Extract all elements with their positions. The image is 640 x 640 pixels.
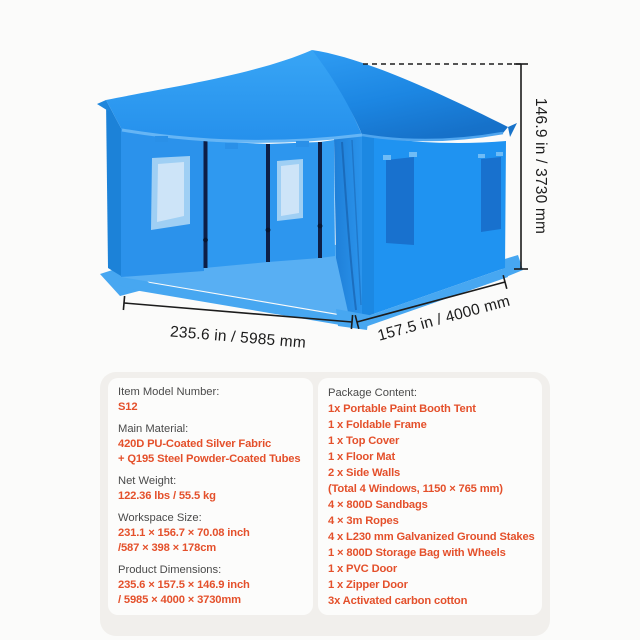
eave-strap-2 bbox=[225, 143, 238, 149]
spec-value: /587 × 398 × 178cm bbox=[118, 541, 313, 556]
spec-group-workspace: Workspace Size: 231.1 × 156.7 × 70.08 in… bbox=[118, 511, 313, 556]
side-window-back bbox=[481, 157, 501, 232]
spec-value: 420D PU-Coated Silver Fabric bbox=[118, 437, 313, 452]
spec-value: 235.6 × 157.5 × 146.9 inch bbox=[118, 578, 313, 593]
side-window-front-tab-left bbox=[383, 155, 391, 160]
spec-group-dimensions: Product Dimensions: 235.6 × 157.5 × 146.… bbox=[118, 563, 313, 608]
side-window-back-tab-left bbox=[478, 154, 485, 158]
zipper-middle bbox=[266, 144, 270, 262]
height-dimension-label: 146.9 in / 3730 mm bbox=[532, 98, 549, 234]
product-spec-image: 146.9 in / 3730 mm 235.6 in / 5985 mm 15… bbox=[0, 0, 640, 640]
front-panel-right-strip bbox=[320, 140, 335, 258]
package-item: 3x Activated carbon cotton bbox=[328, 593, 542, 609]
front-window-left-pane bbox=[157, 162, 184, 222]
zipper-right bbox=[318, 142, 322, 258]
package-item: 4 x L230 mm Galvanized Ground Stakes bbox=[328, 529, 542, 545]
spec-panel: Item Model Number: S12 Main Material: 42… bbox=[100, 372, 550, 636]
package-item: 2 x Side Walls bbox=[328, 465, 542, 481]
zipper-pull-right bbox=[318, 224, 323, 229]
tent-dimension-diagram: 146.9 in / 3730 mm 235.6 in / 5985 mm 15… bbox=[0, 0, 640, 372]
package-content-label: Package Content: bbox=[328, 385, 542, 401]
spec-value: / 5985 × 4000 × 3730mm bbox=[118, 593, 313, 608]
eave-strap-1 bbox=[155, 136, 168, 142]
spec-group-material: Main Material: 420D PU-Coated Silver Fab… bbox=[118, 422, 313, 467]
tent-left-wall-edge bbox=[106, 100, 122, 276]
front-window-right-pane bbox=[281, 164, 299, 216]
package-item: 1 x Zipper Door bbox=[328, 577, 542, 593]
spec-label: Product Dimensions: bbox=[118, 563, 313, 578]
spec-value: 122.36 lbs / 55.5 kg bbox=[118, 489, 313, 504]
package-item: 1x Portable Paint Booth Tent bbox=[328, 401, 542, 417]
package-item: 1 x PVC Door bbox=[328, 561, 542, 577]
side-window-front-tab-right bbox=[409, 152, 417, 157]
eave-strap-3 bbox=[296, 141, 309, 147]
spec-value: + Q195 Steel Powder-Coated Tubes bbox=[118, 452, 313, 467]
package-item: 4 × 3m Ropes bbox=[328, 513, 542, 529]
side-window-front bbox=[386, 157, 414, 245]
spec-card-package: Package Content: 1x Portable Paint Booth… bbox=[318, 378, 542, 615]
zipper-pull-left bbox=[203, 238, 208, 243]
package-item: (Total 4 Windows, 1150 × 765 mm) bbox=[328, 481, 542, 497]
front-door-middle bbox=[204, 141, 268, 268]
spec-group-model: Item Model Number: S12 bbox=[118, 385, 313, 415]
package-item: 1 × 800D Storage Bag with Wheels bbox=[328, 545, 542, 561]
spec-label: Workspace Size: bbox=[118, 511, 313, 526]
spec-card-general: Item Model Number: S12 Main Material: 42… bbox=[108, 378, 313, 615]
side-window-back-tab-right bbox=[496, 152, 503, 156]
spec-label: Main Material: bbox=[118, 422, 313, 437]
package-item: 1 x Floor Mat bbox=[328, 449, 542, 465]
width-cap-left bbox=[123, 296, 124, 310]
package-item: 1 x Foldable Frame bbox=[328, 417, 542, 433]
spec-value: 231.1 × 156.7 × 70.08 inch bbox=[118, 526, 313, 541]
package-item: 1 x Top Cover bbox=[328, 433, 542, 449]
spec-group-weight: Net Weight: 122.36 lbs / 55.5 kg bbox=[118, 474, 313, 504]
spec-label: Item Model Number: bbox=[118, 385, 313, 400]
zipper-left bbox=[204, 141, 208, 268]
package-item: 4 × 800D Sandbags bbox=[328, 497, 542, 513]
tent-right-wall-shade bbox=[362, 135, 374, 318]
tent-roof-right-tip bbox=[508, 123, 517, 137]
width-dimension-label: 235.6 in / 5985 mm bbox=[169, 323, 306, 351]
spec-label: Net Weight: bbox=[118, 474, 313, 489]
spec-value: S12 bbox=[118, 400, 313, 415]
zipper-pull-middle bbox=[266, 228, 271, 233]
